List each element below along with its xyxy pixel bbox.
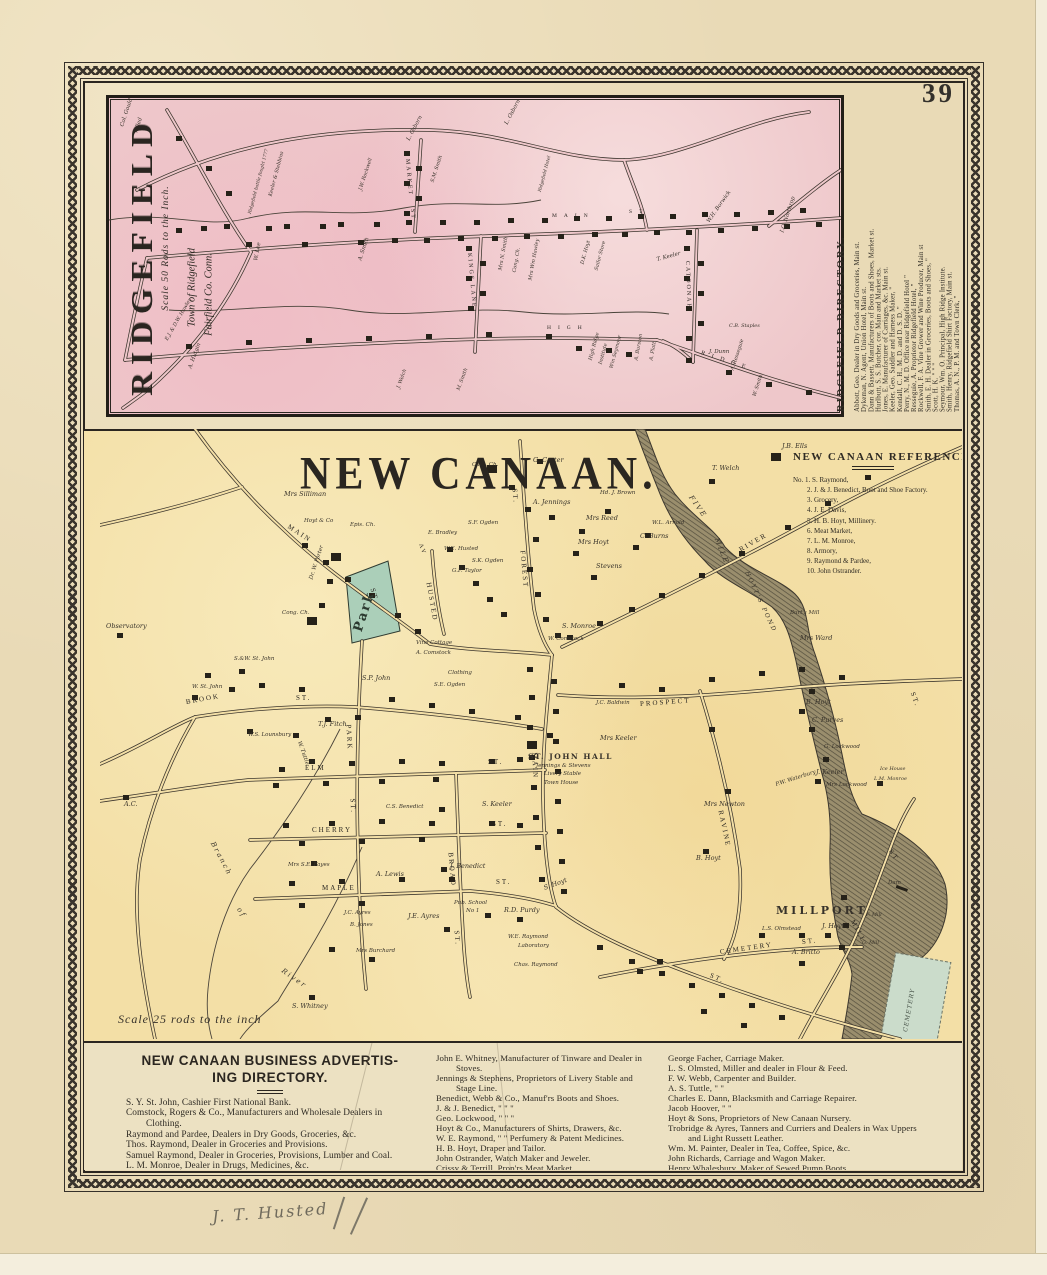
map-label: Dr. W. Porter [309, 545, 325, 581]
directory-entry: Seymour, Wm. O. Principal, High Ridge In… [940, 136, 947, 412]
ridgefield-labels-layer: MAINSTKINGS LANECATOONAHMARKETSTHIGHRIDG… [109, 98, 841, 414]
map-label: B. Hoyt [696, 855, 721, 862]
map-label: W.L. Arnold [652, 521, 684, 527]
map-label: Park [352, 590, 377, 634]
street-label: PARK [345, 724, 353, 750]
street-label: MAIN [552, 214, 595, 220]
street-label: ST. [488, 759, 503, 766]
map-label: S. Keeler [482, 801, 512, 808]
business-directory-title-line1: NEW CANAAN BUSINESS ADVERTIS- [120, 1053, 420, 1070]
business-entry: Hoyt & Sons, Proprietors of New Canaan N… [662, 1113, 930, 1123]
map-label: P.W. Waterbury [775, 770, 817, 788]
map-label: G.F. Taylor [452, 569, 482, 575]
business-entry: Jacob Hoover, " " [662, 1103, 930, 1113]
pencil-marks [330, 1196, 390, 1232]
directory-entry: Resseguie, A. Proprietor Ridgefield Hote… [911, 136, 918, 412]
business-directory-title-line2: ING DIRECTORY. [120, 1070, 420, 1087]
ridgefield-directory: RIDGEFIELD DIRECTORY. Abbott, Geo. Deale… [836, 136, 966, 412]
map-label: D.K. Hoyt [581, 240, 592, 265]
business-entry: L. M. Monroe, Dealer in Drugs, Medicines… [120, 1161, 420, 1170]
map-label: Cong. Ch. [282, 611, 310, 617]
map-label: ST. JOHN HALL [528, 753, 613, 761]
directory-entry: Smith, Henry, Ridgefield Shirt Factory, … [947, 136, 954, 412]
business-directory-rule [257, 1090, 283, 1094]
map-label: Burt's Mill [790, 611, 819, 617]
business-entry: Henry Whalesbury, Maker of Sewed Pump Bo… [662, 1163, 930, 1170]
map-label: M. Smith [457, 368, 470, 392]
map-label: L.M. Monroe [874, 777, 907, 782]
map-label: Observatory [106, 623, 147, 630]
map-label: Hoyt & Co [304, 519, 333, 525]
ridgefield-directory-title: RIDGEFIELD DIRECTORY. [836, 136, 847, 412]
reference-item: No. 1. S. Raymond, [793, 475, 953, 485]
street-label: ST. [802, 937, 818, 946]
map-label: B. Jones [350, 923, 373, 929]
map-label: S.P. John [362, 675, 390, 682]
ridgefield-map-panel: MAINSTKINGS LANECATOONAHMARKETSTHIGHRIDG… [106, 95, 844, 417]
map-label: Sailor Store [595, 240, 608, 271]
map-label: W. St. John [192, 685, 222, 691]
map-label: Mrs Hoyt [578, 539, 609, 546]
map-label: Wm Seymour [610, 335, 624, 369]
map-label: L. Osborn [407, 115, 425, 142]
map-label: J.B. Ells [782, 443, 807, 450]
street-label: HIGH [547, 326, 589, 332]
border-band-right [971, 66, 980, 1188]
map-label: W.E. Raymond [508, 935, 548, 941]
map-label: Vine Cottage [416, 641, 452, 647]
street-label: RIVER [738, 532, 768, 554]
street-label: ST. [492, 821, 507, 828]
business-entry: Hoyt & Co., Manufacturers of Shirts, Dra… [430, 1123, 652, 1133]
reference-item: 10. John Ostrander. [793, 566, 953, 576]
map-label: F. Mill [866, 913, 882, 918]
street-label: ST. [496, 879, 511, 886]
reference-item: 9. Raymond & Pardee, [793, 556, 953, 566]
newcanaan-title: NEW CANAAN. [300, 447, 658, 501]
business-entry: Samuel Raymond, Dealer in Groceries, Pro… [120, 1151, 420, 1162]
page-number: 39 [922, 78, 955, 109]
map-label: G. Lockwood [824, 745, 860, 751]
business-entry: John E. Whitney, Manufacturer of Tinware… [430, 1053, 652, 1073]
business-entry: Raymond and Pardee, Dealers in Dry Goods… [120, 1130, 420, 1141]
map-label: CEMETERY [903, 988, 917, 1033]
directory-entry: Rockwell, F. A. Vine Grower and Wine Pro… [918, 136, 925, 412]
map-label: A. Burston [635, 334, 645, 361]
map-label: S.&W. St. John [234, 657, 274, 663]
directory-entry: Keeler, Geo. Saddler and Harness Maker, … [890, 136, 897, 412]
map-label: A. Platt [650, 342, 658, 361]
business-directory: NEW CANAAN BUSINESS ADVERTIS- ING DIRECT… [84, 1043, 962, 1170]
directory-entry: Dann & Bassett, Manufacturers of Boots a… [868, 136, 875, 412]
reference-item: 2. J. & J. Benedict, Boot and Shoe Facto… [793, 485, 953, 495]
map-label: R.D. Purdy [504, 907, 540, 914]
map-label: A.C. [124, 801, 138, 808]
street-label: CHERRY [312, 827, 352, 834]
map-label: W. Comstock [548, 637, 584, 643]
map-label: J.E. Ayres [408, 913, 439, 920]
map-label: of [235, 906, 247, 919]
directory-entry: Thomas, A. N., P. M. and Town Clerk, " [954, 136, 961, 412]
map-label: Pub. School [454, 901, 487, 907]
street-label: ST. [296, 695, 311, 702]
scan-edge-bottom [0, 1253, 1047, 1275]
directory-entry: Abbott, Geo. Dealer in Dry Goods and Gro… [854, 136, 861, 412]
map-label: I.O. Northrop [780, 196, 797, 233]
map-label: J.W. Rockwell [359, 158, 374, 192]
map-label: L.S. Olmstead [762, 927, 801, 933]
business-directory-column-2: John E. Whitney, Manufacturer of Tinware… [430, 1053, 652, 1170]
map-label: S. Whitney [292, 1003, 328, 1010]
map-label: Institute [599, 343, 609, 365]
map-label: Chas. Raymond [514, 963, 558, 969]
map-label: Clothing [448, 671, 472, 677]
business-entry: A. S. Tuttle, " " [662, 1083, 930, 1093]
map-label: Ridgefield Hotel [539, 156, 553, 193]
map-label: River [280, 968, 308, 990]
newcanaan-scale-note: Scale 25 rods to the inch [118, 1012, 262, 1027]
reference-item: 8. Armory, [793, 546, 953, 556]
map-label: E. Bradley [428, 531, 457, 537]
street-label: PROSPECT [640, 697, 691, 708]
directory-entry: Hurlbutt, S. S. Butcher, cor. Main and M… [875, 136, 882, 412]
street-label: AV [417, 543, 427, 556]
map-label: S. Hoyt [543, 877, 568, 891]
directory-entry: Kendall, C. H., M. D. and D. S. D. " [897, 136, 904, 412]
business-entry: Crissy & Terrill, Prop'rs Meat Market. [430, 1163, 652, 1170]
reference-item: 4. J. E. Davis, [793, 505, 953, 515]
street-label: ST. [453, 930, 461, 946]
map-label: A. Lewis [376, 871, 404, 878]
map-label: MILE [713, 537, 730, 565]
map-label: A. Comstock [416, 651, 451, 657]
newcanaan-references: NEW CANAAN REFERENCES. No. 1. S. Raymond… [793, 451, 953, 576]
map-label: Branch [209, 841, 233, 877]
map-label: S.M. Smith [431, 155, 444, 183]
atlas-page: 39 MAINSTKINGS LANECATOONAHMARKETSTHIGHR… [0, 0, 1047, 1275]
business-entry: Trobridge & Ayres, Tanners and Curriers … [662, 1123, 930, 1143]
map-label: C. Burns [640, 533, 668, 540]
directory-entry: Jones, E. Manufacturer of Carriages, &c.… [883, 136, 890, 412]
street-label: BROOK [185, 693, 220, 706]
business-entry: John Richards, Carriage and Wagon Maker. [662, 1153, 930, 1163]
business-entry: J. & J. Benedict, " " " [430, 1103, 652, 1113]
map-label: J. Benedict [450, 863, 485, 870]
map-label: Dam [888, 881, 901, 887]
street-label: KINGS LANE [466, 253, 477, 309]
map-label: W. Smith [753, 374, 765, 397]
ridgefield-scale-note: Scale 50 Rods to the Inch. [161, 143, 175, 353]
map-label: Jennings & Stevens [536, 764, 591, 770]
map-label: A. Britto [792, 949, 820, 956]
business-entry: George Facher, Carriage Maker. [662, 1053, 930, 1063]
map-label: Town House [544, 781, 578, 787]
map-label: S.F. Ogden [468, 521, 498, 527]
map-label: S.E. Ogden [434, 683, 465, 689]
directory-entry: Perry, N., M. D. Office near Ridgefield … [904, 136, 911, 412]
references-rule [852, 466, 894, 470]
map-label: No 1 [466, 909, 479, 915]
map-label: A. Smith [358, 237, 371, 261]
map-label: MILLPORT [776, 905, 868, 916]
map-label: Ice House [880, 767, 905, 772]
street-label: CATOONAH [684, 261, 692, 310]
street-label: ST. [349, 798, 357, 814]
map-label: Keeler & Stebbins [269, 151, 286, 197]
business-entry: F. W. Webb, Carpenter and Builder. [662, 1073, 930, 1083]
street-label: ST [629, 210, 649, 216]
map-label: Livery Stable [544, 772, 581, 778]
map-label: B. Hoyt [806, 699, 831, 706]
map-label: Mrs Keeler [600, 735, 637, 742]
map-label: HOYT'S POND [743, 571, 777, 634]
street-label: CEMETERY [720, 942, 774, 956]
street-label: ST [887, 848, 900, 862]
border-band-top [68, 66, 980, 75]
business-entry: S. Y. St. John, Cashier First National B… [120, 1098, 420, 1109]
reference-item: 5. H. B. Hoyt, Millinery. [793, 516, 953, 526]
map-label: L. Osborn [505, 99, 523, 126]
map-label: Ridgefield battle fought 1777 [249, 149, 271, 215]
border-band-bottom [68, 1179, 980, 1188]
directory-entry: Dykeman, N. Agent, Union Hotel, Main st. [861, 136, 868, 412]
map-label: Mrs Burchard [356, 949, 395, 955]
map-label: Mrs Wm Hawley [529, 239, 541, 281]
map-label: C.S. Benedict [386, 805, 424, 811]
map-label: Mrs Ward [800, 635, 832, 642]
map-label: G. Mill [862, 941, 879, 946]
handwritten-inscription: J. T. Husted [211, 1199, 328, 1226]
map-label: FIVE [687, 494, 708, 519]
map-label: J.C. Baldwin [596, 701, 630, 707]
business-entry: Benedict, Webb & Co., Manuf'rs Boots and… [430, 1093, 652, 1103]
street-label: HUSTED [425, 582, 439, 622]
street-label: ELM [305, 765, 326, 772]
business-entry: John Ostrander, Watch Maker and Jeweler. [430, 1153, 652, 1163]
map-label: C. Purves [812, 717, 843, 724]
reference-item: 7. L. M. Monroe, [793, 536, 953, 546]
map-label: Mrs N. Smith [499, 237, 510, 271]
map-label: S.K. Ogden [472, 559, 503, 565]
map-label: Epis. Ch. [350, 523, 375, 529]
business-entry: W. E. Raymond, " " Perfumery & Patent Me… [430, 1133, 652, 1143]
map-label: J. Hoyt [822, 923, 844, 930]
business-entry: Wm. M. Painter, Dealer in Tea, Coffee, S… [662, 1143, 930, 1153]
street-label: FOREST [519, 550, 529, 589]
map-label: W. Lee [254, 242, 263, 261]
map-label: Mrs Reed [586, 515, 618, 522]
reference-item: 3. Grocery, [793, 495, 953, 505]
map-label: Mrs Newton [704, 801, 745, 808]
business-entry: Geo. Lockwood, " " " [430, 1113, 652, 1123]
street-label: ST [409, 209, 416, 220]
map-label: S. Monroe [562, 623, 596, 630]
map-label: W.E. Husted [444, 547, 478, 553]
street-label: MAPLE [322, 885, 356, 892]
map-label: W.S. Lounsbury [248, 733, 291, 739]
map-label: T. Welch [712, 465, 739, 472]
business-directory-title: NEW CANAAN BUSINESS ADVERTIS- ING DIRECT… [120, 1053, 420, 1087]
map-label: Laboratory [518, 944, 549, 950]
map-label: Mrs S.E. Fayes [288, 863, 330, 869]
directory-entry: Smith, E. H. Dealer in Groceries, Boots … [925, 136, 932, 412]
business-entry: Thos. Raymond, Dealer in Groceries and P… [120, 1140, 420, 1151]
border-band-left [68, 66, 77, 1188]
business-entry: Charles E. Dann, Blacksmith and Carriage… [662, 1093, 930, 1103]
ridgefield-town-line1: Town of Ridgefield [187, 203, 200, 373]
map-label: T.J. Fitch [318, 721, 347, 728]
street-label: MARKET [404, 159, 413, 197]
map-label: Mrs Lockwood [826, 783, 867, 789]
map-label: C.B. Staples [729, 324, 760, 329]
street-label: ST. [909, 691, 921, 708]
directory-entry: Scott, H. K. " " " [932, 136, 939, 412]
business-directory-column-1: NEW CANAAN BUSINESS ADVERTIS- ING DIRECT… [120, 1053, 420, 1170]
map-label: T. Keeler [656, 252, 681, 264]
street-label: ST. [709, 972, 726, 985]
map-label: W. Tuttle [295, 741, 309, 766]
map-label: J.C. Ayres [344, 911, 371, 917]
street-label: MAIN [286, 524, 312, 544]
map-label: J. Keeler [816, 769, 844, 776]
business-entry: Comstock, Rogers & Co., Manufacturers an… [120, 1108, 420, 1129]
map-label: J. Dunn [709, 350, 729, 356]
business-entry: Jennings & Stephens, Proprietors of Live… [430, 1073, 652, 1093]
map-label: W.H. Borwick [707, 190, 733, 224]
ridgefield-town-line2: Fairfield Co. Conn. [204, 210, 217, 380]
map-label: J. Welch [397, 369, 409, 390]
map-label: Cong. Ch. [513, 247, 522, 273]
business-directory-column-3: George Facher, Carriage Maker.L. S. Olms… [662, 1053, 930, 1170]
scan-edge-right [1035, 0, 1047, 1275]
map-label: Stevens [596, 563, 622, 570]
business-entry: H. B. Hoyt, Draper and Tailor. [430, 1143, 652, 1153]
reference-item: 6. Meat Market, [793, 526, 953, 536]
ridgefield-title: RIDGEFIELD [124, 99, 164, 414]
newcanaan-map: MAINST.BROOKST.ELMST.CHERRYST.MAPLEST.PA… [100, 429, 962, 1039]
street-label: RAVINE [717, 810, 732, 848]
references-title: NEW CANAAN REFERENCES. [793, 451, 953, 463]
business-entry: L. S. Olmsted, Miller and dealer in Flou… [662, 1063, 930, 1073]
